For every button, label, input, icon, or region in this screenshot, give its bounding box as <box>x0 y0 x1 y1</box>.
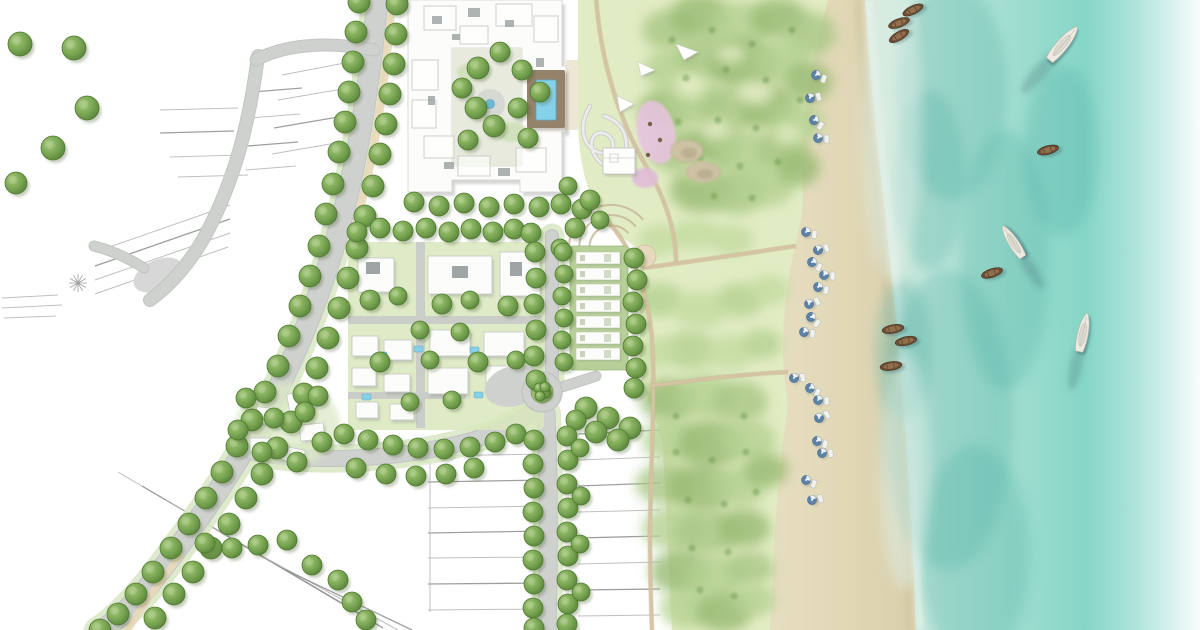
building <box>356 402 378 418</box>
tree <box>360 290 380 310</box>
villa-unit-court <box>604 334 611 342</box>
tree <box>346 458 366 478</box>
plot-line <box>578 510 660 512</box>
tree <box>107 603 129 625</box>
tree <box>498 296 518 316</box>
tree <box>434 439 454 459</box>
tree-highlight <box>486 118 495 127</box>
tree <box>454 193 474 213</box>
woodland-blob <box>732 584 776 616</box>
tree <box>518 128 538 148</box>
tree-highlight <box>558 356 565 363</box>
tree-highlight <box>558 268 565 275</box>
tree-highlight <box>455 81 463 89</box>
tree-highlight <box>622 420 631 429</box>
foliage-speckle <box>725 549 732 556</box>
tree-highlight <box>594 214 601 221</box>
tree <box>524 346 544 366</box>
tree <box>565 218 585 238</box>
tree <box>358 430 378 450</box>
tree-highlight <box>536 385 540 389</box>
sun-lounger <box>811 230 817 239</box>
tree-highlight <box>470 60 479 69</box>
tree-highlight <box>281 328 290 337</box>
plot-line <box>250 114 300 118</box>
tree <box>295 402 315 422</box>
foliage-speckle <box>743 449 750 456</box>
tree <box>623 292 643 312</box>
tree <box>182 561 204 583</box>
tree <box>506 424 526 444</box>
villa-unit-court <box>604 270 611 278</box>
tree-highlight <box>464 294 471 301</box>
tree <box>195 533 215 553</box>
roof-plant <box>452 266 468 278</box>
tree <box>465 97 487 119</box>
tree <box>504 194 524 214</box>
tree-highlight <box>198 536 206 544</box>
foliage-speckle <box>749 195 756 202</box>
tree-highlight <box>411 441 419 449</box>
tree-highlight <box>537 393 541 397</box>
roof-block <box>424 136 454 158</box>
tree <box>483 222 503 242</box>
tree-highlight <box>267 411 275 419</box>
tree-highlight <box>471 355 479 363</box>
tree-highlight <box>166 586 175 595</box>
foliage-speckle <box>737 163 744 170</box>
tree <box>479 197 499 217</box>
tree-highlight <box>325 176 334 185</box>
tree <box>523 598 543 618</box>
villa-unit-court <box>580 351 585 357</box>
tree <box>521 223 541 243</box>
tree <box>299 265 321 287</box>
tree-highlight <box>501 299 509 307</box>
building <box>428 368 468 394</box>
tree <box>443 391 461 409</box>
tree <box>404 192 424 212</box>
foliage-speckle <box>789 27 796 34</box>
tree <box>75 96 99 120</box>
tree <box>302 555 322 575</box>
road <box>546 414 548 630</box>
tree-highlight <box>345 595 353 603</box>
sandbar-highlight <box>880 350 930 590</box>
tree <box>356 610 376 630</box>
tree <box>383 435 403 455</box>
tree <box>228 420 248 440</box>
plot-line <box>274 116 344 128</box>
tree <box>607 429 629 451</box>
villa-unit-court <box>580 303 585 309</box>
tree <box>289 295 311 317</box>
tree-highlight <box>296 386 305 395</box>
tree-highlight <box>357 208 366 217</box>
tree <box>322 173 344 195</box>
tree-highlight <box>386 438 394 446</box>
villa-unit-court <box>580 287 585 293</box>
tree-highlight <box>526 601 534 609</box>
tree <box>524 574 544 594</box>
tree <box>160 537 182 559</box>
tree-highlight <box>315 435 323 443</box>
tree-highlight <box>528 245 536 253</box>
tree <box>376 464 396 484</box>
tree-highlight <box>331 300 340 309</box>
villa-unit-court <box>580 255 585 261</box>
tree-highlight <box>457 196 465 204</box>
tree-highlight <box>560 525 568 533</box>
tree <box>163 583 185 605</box>
tree <box>278 325 300 347</box>
tree <box>626 358 646 378</box>
tree-highlight <box>404 396 411 403</box>
tree-highlight <box>583 193 591 201</box>
tree-highlight <box>363 293 371 301</box>
tree-highlight <box>461 133 469 141</box>
tree-highlight <box>468 100 477 109</box>
tree <box>460 437 480 457</box>
foliage-speckle <box>709 27 716 34</box>
foliage-speckle <box>689 545 696 552</box>
tree-highlight <box>298 405 306 413</box>
tree-highlight <box>439 467 447 475</box>
tree <box>401 393 419 411</box>
building <box>352 336 378 356</box>
tree-highlight <box>507 222 515 230</box>
tree-highlight <box>8 175 17 184</box>
tree <box>553 331 571 349</box>
tree-highlight <box>627 251 635 259</box>
tree-highlight <box>554 197 562 205</box>
foliage-speckle <box>673 449 680 456</box>
tree-highlight <box>290 455 298 463</box>
tree <box>524 478 544 498</box>
tree <box>485 432 505 452</box>
woodland-blob <box>737 81 773 105</box>
tree-highlight <box>163 540 172 549</box>
tree-highlight <box>251 538 259 546</box>
villa-unit-court <box>604 318 611 326</box>
tree-highlight <box>292 298 301 307</box>
tree <box>451 323 469 341</box>
tree-highlight <box>630 273 638 281</box>
tree-highlight <box>464 222 472 230</box>
tree <box>553 287 571 305</box>
tree-highlight <box>221 516 230 525</box>
tree <box>370 352 390 372</box>
tree-highlight <box>409 469 417 477</box>
foliage-speckle <box>697 587 704 594</box>
tree <box>439 222 459 242</box>
tree-highlight <box>629 361 637 369</box>
tree-highlight <box>305 558 313 566</box>
tree <box>345 21 367 43</box>
foliage-speckle <box>753 489 760 496</box>
villa-pool <box>362 394 371 400</box>
tree-highlight <box>231 423 239 431</box>
tree <box>529 197 549 217</box>
tree <box>461 291 479 309</box>
tree-highlight <box>524 226 532 234</box>
tree-highlight <box>341 84 350 93</box>
tree <box>464 458 484 478</box>
tree-highlight <box>280 533 288 541</box>
tree-highlight <box>225 541 233 549</box>
woodland-blob <box>715 45 745 63</box>
tree-highlight <box>254 466 263 475</box>
woodland-blob <box>674 73 706 97</box>
tree <box>468 352 488 372</box>
roof-accent <box>505 20 514 27</box>
tree <box>524 430 544 450</box>
tree <box>572 487 590 505</box>
tree <box>523 502 543 522</box>
tree <box>334 111 356 133</box>
sand-pond-shade <box>681 148 697 159</box>
tree-highlight <box>424 354 431 361</box>
tree-highlight <box>486 225 494 233</box>
foliage-speckle <box>763 77 770 84</box>
tree-highlight <box>181 516 190 525</box>
tree-highlight <box>348 24 357 33</box>
foliage-speckle <box>741 413 748 420</box>
tree <box>347 222 367 242</box>
tree-highlight <box>521 131 529 139</box>
tree <box>342 51 364 73</box>
tree <box>467 57 489 79</box>
tree <box>328 141 350 163</box>
foliage-speckle <box>709 457 716 464</box>
tree-highlight <box>386 56 395 65</box>
tree-highlight <box>557 246 564 253</box>
tree <box>490 42 510 62</box>
tree-highlight <box>560 477 568 485</box>
tree-highlight <box>414 324 421 331</box>
tree <box>222 538 242 558</box>
foliage-speckle <box>775 159 782 166</box>
villa-unit-court <box>604 302 611 310</box>
foliage-speckle <box>711 193 718 200</box>
tree-highlight <box>361 433 369 441</box>
tree-highlight <box>626 295 634 303</box>
masterplan-canvas <box>0 0 1200 630</box>
sun-lounger <box>810 330 816 338</box>
tree <box>524 294 544 314</box>
tree <box>8 32 32 56</box>
tree-highlight <box>488 435 496 443</box>
tree-highlight <box>560 573 568 581</box>
tree-highlight <box>578 400 587 409</box>
tree <box>328 570 348 590</box>
roof-accent <box>452 34 460 40</box>
roof-accent <box>536 58 544 67</box>
tree-highlight <box>527 297 535 305</box>
tree-highlight <box>482 200 490 208</box>
plot-line <box>578 615 660 616</box>
villa-pool <box>414 346 423 352</box>
tree <box>626 314 646 334</box>
tree <box>555 265 573 283</box>
plot-line <box>282 62 350 75</box>
tree <box>362 175 384 197</box>
tree-highlight <box>527 621 535 629</box>
tree-highlight <box>600 410 609 419</box>
tree-highlight <box>454 326 461 333</box>
tree-highlight <box>337 114 346 123</box>
tree <box>429 196 449 216</box>
tree-highlight <box>244 412 253 421</box>
woodland-blob <box>742 329 782 359</box>
plot-line <box>578 457 660 460</box>
hotel-layer <box>408 0 578 196</box>
tree-highlight <box>574 442 581 449</box>
tree-highlight <box>345 54 354 63</box>
foliage-speckle <box>685 497 692 504</box>
villa-unit-court <box>580 319 585 325</box>
sand-pond-shade <box>697 169 714 179</box>
tree <box>5 172 27 194</box>
roof-plant <box>510 262 522 276</box>
tree <box>504 219 524 239</box>
tree-highlight <box>145 564 154 573</box>
sun-lounger <box>824 135 829 143</box>
foliage-speckle <box>675 119 682 126</box>
tree <box>623 336 643 356</box>
tree <box>452 78 472 98</box>
tree <box>483 115 505 137</box>
tree <box>287 452 307 472</box>
tree <box>530 82 550 102</box>
foliage-speckle <box>731 593 738 600</box>
sun-lounger <box>828 449 834 457</box>
tree-highlight <box>340 270 349 279</box>
tree <box>383 53 405 75</box>
tree-highlight <box>392 290 399 297</box>
woodland-blob <box>712 381 768 423</box>
tree-highlight <box>435 297 443 305</box>
tree <box>312 432 332 452</box>
tree-highlight <box>556 334 563 341</box>
tree <box>555 353 573 371</box>
tree-highlight <box>320 330 329 339</box>
tree-highlight <box>556 290 563 297</box>
tree-highlight <box>110 606 119 615</box>
tree-highlight <box>626 339 634 347</box>
tree-highlight <box>359 613 367 621</box>
foliage-speckle <box>749 41 756 48</box>
tree <box>507 351 525 369</box>
tree-highlight <box>511 101 519 109</box>
building <box>384 374 410 392</box>
tree-highlight <box>349 461 357 469</box>
tree <box>277 530 297 550</box>
tree-highlight <box>238 490 247 499</box>
tree-highlight <box>574 538 581 545</box>
tree <box>408 438 428 458</box>
tree-highlight <box>239 391 247 399</box>
tree-highlight <box>309 360 318 369</box>
tree-highlight <box>526 457 534 465</box>
tree <box>591 211 609 229</box>
tree-highlight <box>463 440 471 448</box>
villa-unit-court <box>580 335 585 341</box>
tree <box>328 297 350 319</box>
tree <box>142 561 164 583</box>
tree-highlight <box>510 354 517 361</box>
tree-highlight <box>569 413 577 421</box>
tree <box>62 36 86 60</box>
tree-highlight <box>529 373 537 381</box>
tree <box>559 177 577 195</box>
tree-highlight <box>214 464 223 473</box>
tree <box>315 203 337 225</box>
sun-lounger <box>824 397 829 405</box>
woodland-blob <box>744 453 788 487</box>
play-equipment <box>658 138 662 142</box>
foliage-speckle <box>797 97 804 104</box>
woodland-blob <box>718 509 770 547</box>
tree-highlight <box>526 553 534 561</box>
roof-block <box>534 16 558 42</box>
tree-highlight <box>198 490 207 499</box>
villa-unit-court <box>604 254 611 262</box>
tree-highlight <box>407 195 415 203</box>
tree <box>338 81 360 103</box>
tree-highlight <box>442 225 450 233</box>
play-equipment <box>646 153 650 157</box>
tree-highlight <box>379 467 387 475</box>
woodland-blob <box>775 125 801 143</box>
tree-highlight <box>558 312 565 319</box>
tree-highlight <box>527 577 535 585</box>
tree-highlight <box>66 40 76 50</box>
tree-highlight <box>561 501 569 509</box>
tree-highlight <box>493 45 501 53</box>
tree-highlight <box>515 63 523 71</box>
tree-highlight <box>311 389 319 397</box>
foliage-speckle <box>669 37 676 44</box>
tree-highlight <box>507 197 515 205</box>
tree-highlight <box>561 597 569 605</box>
tree-highlight <box>365 178 374 187</box>
roof-accent <box>432 16 442 24</box>
tree-highlight <box>331 144 340 153</box>
tree <box>342 592 362 612</box>
tree-highlight <box>270 358 279 367</box>
tree <box>523 454 543 474</box>
tree <box>627 270 647 290</box>
tree-highlight <box>372 146 381 155</box>
tree <box>580 190 600 210</box>
plot-line <box>160 131 234 133</box>
tree <box>235 487 257 509</box>
overlay-layer <box>1085 0 1200 630</box>
tree-highlight <box>185 564 194 573</box>
tree-highlight <box>527 433 535 441</box>
tree-highlight <box>378 116 387 125</box>
sun-lounger <box>799 373 805 382</box>
plot-line <box>2 295 58 298</box>
tree <box>236 388 256 408</box>
tree <box>379 83 401 105</box>
tree <box>308 235 330 257</box>
woodland-blob <box>750 275 790 305</box>
tree <box>144 607 166 629</box>
tree-highlight <box>437 442 445 450</box>
villa-pool <box>474 392 483 398</box>
